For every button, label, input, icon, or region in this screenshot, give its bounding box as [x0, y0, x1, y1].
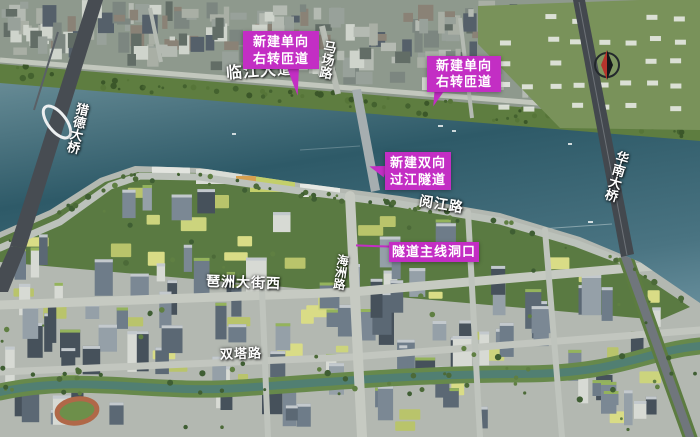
aerial-planning-render: 临江大道 马场路 猎德大桥 华南大桥 阅江路 海洲路 琶洲大街西 双塔路 新建单…: [0, 0, 700, 437]
aerial-scene: [0, 0, 700, 437]
